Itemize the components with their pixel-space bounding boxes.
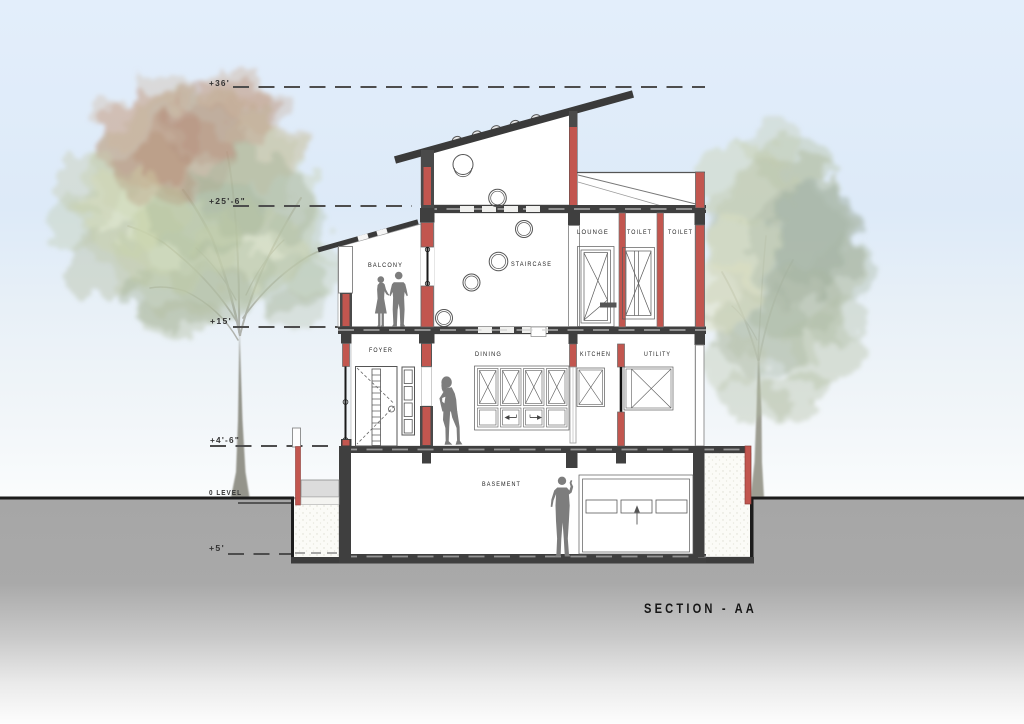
svg-text:STAIRCASE: STAIRCASE bbox=[511, 261, 552, 268]
svg-text:LOUNGE: LOUNGE bbox=[577, 229, 609, 236]
svg-text:DINING: DINING bbox=[475, 351, 502, 358]
svg-text:0 LEVEL: 0 LEVEL bbox=[209, 488, 242, 497]
svg-text:+15': +15' bbox=[210, 317, 232, 326]
svg-text:BALCONY: BALCONY bbox=[368, 262, 403, 269]
svg-text:TOILET: TOILET bbox=[668, 229, 693, 236]
svg-text:SECTION - AA: SECTION - AA bbox=[644, 600, 757, 616]
svg-text:+25'-6": +25'-6" bbox=[209, 197, 246, 206]
svg-text:+5': +5' bbox=[209, 544, 225, 553]
svg-text:BASEMENT: BASEMENT bbox=[482, 481, 521, 488]
svg-text:+4'-6": +4'-6" bbox=[210, 436, 240, 445]
svg-text:FOYER: FOYER bbox=[369, 347, 393, 354]
svg-text:KITCHEN: KITCHEN bbox=[580, 351, 611, 358]
svg-text:UTILITY: UTILITY bbox=[644, 351, 671, 358]
svg-text:+36': +36' bbox=[209, 79, 230, 88]
svg-text:TOILET: TOILET bbox=[627, 229, 652, 236]
